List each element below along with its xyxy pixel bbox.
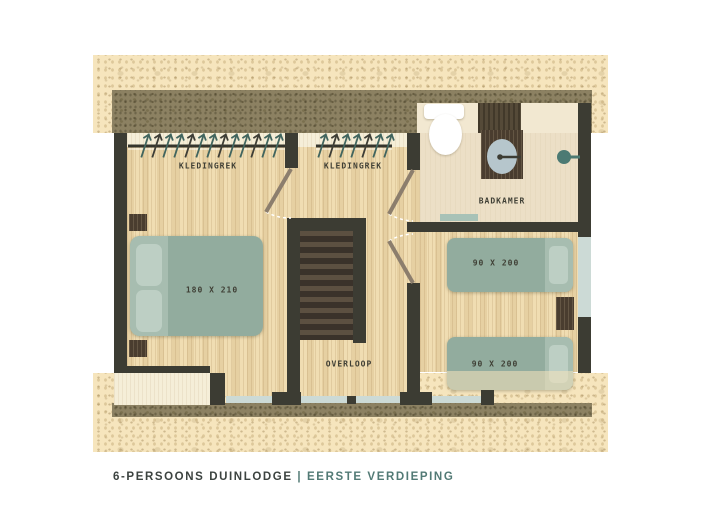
label-bed-single-bottom-size: 90 X 200	[472, 360, 519, 369]
label-closet-left: KLEDINGREK	[179, 162, 237, 171]
plan-annotations	[0, 0, 713, 519]
caption-title: 6-PERSOONS DUINLODGE	[113, 471, 293, 483]
label-bathroom: BADKAMER	[479, 197, 526, 206]
floorplan-page: KLEDINGREK KLEDINGREK BADKAMER OVERLOOP …	[0, 0, 713, 519]
label-bed-double-size: 180 X 210	[186, 286, 238, 295]
door-leaf-bedroom-left	[266, 169, 291, 212]
label-landing: OVERLOOP	[326, 360, 373, 369]
caption-separator: |	[297, 471, 302, 483]
plan-caption: 6-PERSOONS DUINLODGE | EERSTE VERDIEPING	[113, 471, 454, 483]
caption-floor: EERSTE VERDIEPING	[307, 471, 454, 483]
faucet-icon	[497, 154, 503, 160]
shower-head-icon	[557, 150, 571, 164]
label-bed-single-top-size: 90 X 200	[473, 259, 520, 268]
label-closet-middle: KLEDINGREK	[324, 162, 382, 171]
door-leaf-bedroom-right	[389, 241, 413, 283]
door-swing-arc	[389, 234, 413, 241]
door-swing-arc	[389, 214, 413, 221]
door-swing-arc	[266, 212, 291, 218]
door-leaf-bathroom	[389, 170, 413, 214]
